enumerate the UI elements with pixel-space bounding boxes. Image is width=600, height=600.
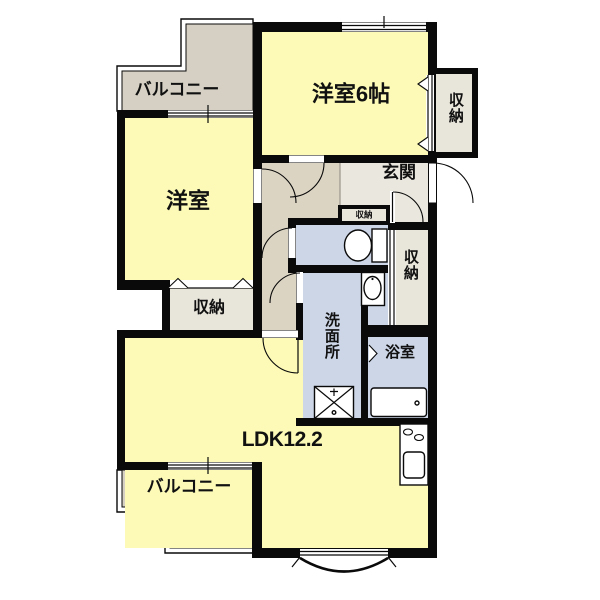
label-closet-top-right: 収納 [447, 92, 463, 124]
label-entrance: 玄関 [382, 164, 416, 182]
washer-pan-icon [315, 387, 354, 419]
label-closet-small: 収納 [355, 211, 372, 220]
label-washroom: 洗面所 [323, 312, 339, 360]
label-ldk: LDK12.2 [242, 429, 323, 451]
floorplan-canvas: バルコニー 洋室6帖 収納 洋室 玄関 収納 収納 収納 洗面所 浴室 LDK1… [0, 0, 600, 600]
kitchen-counter-icon [400, 424, 428, 485]
label-balcony-bottom: バルコニー [147, 478, 232, 496]
label-bedroom-left: 洋室 [166, 189, 210, 212]
label-closet-left: 収納 [193, 301, 225, 318]
door-entry-front [429, 163, 474, 203]
bay-window [292, 549, 396, 572]
floorplan-drawing [0, 0, 600, 600]
toilet-icon [345, 229, 388, 262]
label-closet-right: 収納 [402, 249, 418, 281]
bathtub-icon [371, 388, 427, 417]
label-balcony-top: バルコニー [135, 81, 220, 99]
window-bedroom-top [342, 16, 426, 32]
washbasin-icon [362, 273, 385, 306]
closet-right-door [388, 230, 396, 325]
label-bathroom: 浴室 [385, 345, 415, 361]
label-bedroom-top: 洋室6帖 [312, 82, 390, 105]
